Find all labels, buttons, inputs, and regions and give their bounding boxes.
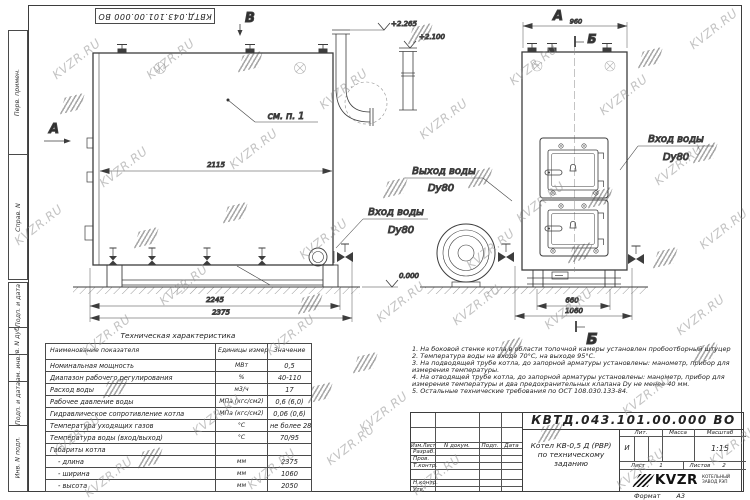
- rear-duct-pipe: [399, 48, 417, 110]
- spec-cell: Гидравлическое сопротивление котла: [46, 408, 216, 420]
- callout-water-inlet-left: [336, 219, 428, 248]
- spec-row: Температура воды (вход/выход)°С70/95: [46, 432, 312, 444]
- spec-cell: 0,06 (0,6): [268, 408, 312, 420]
- dim-1060: 1060: [565, 307, 583, 315]
- top-valves-side-view: [117, 45, 328, 54]
- tb-col-data: Дата: [501, 443, 522, 449]
- kvzr-logo-icon: [632, 474, 654, 487]
- spec-cell: м3/ч: [216, 384, 268, 396]
- spec-cell: Расход воды: [46, 384, 216, 396]
- view-label-a-right: А: [552, 9, 563, 24]
- tb-sheets-label: Листов: [686, 463, 714, 469]
- notes-list: 1. На боковой стенке котла в области топ…: [412, 346, 743, 395]
- spec-cell: 2050: [268, 480, 312, 492]
- kvzr-logo-subtitle: КОТЕЛЬНЫЙ ЗАВОД РЭП: [702, 475, 730, 486]
- spec-row: Диапазон рабочего регулирования%40-110: [46, 372, 312, 384]
- tb-col-izm: Изм.Лист: [411, 443, 435, 449]
- tb-row-razrab: Разраб.: [413, 449, 435, 455]
- water-inlet-right-label: Вход воды: [648, 134, 704, 145]
- spec-row: - длинамм2375: [46, 456, 312, 468]
- spec-header-row: Наименование показателя Единицы измерени…: [46, 344, 312, 360]
- title-block-right: Лит. Масса Масштаб И 1:15 Лист 1 Листов …: [619, 429, 746, 491]
- spec-header-name: Наименование показателя: [46, 344, 216, 360]
- spec-cell: 17: [268, 384, 312, 396]
- format-value: А3: [676, 492, 685, 500]
- spec-cell: - высота: [46, 480, 216, 492]
- kvzr-logo-text: KVZR: [655, 472, 698, 488]
- tb-name-line2: по техническому заданию: [523, 450, 619, 468]
- tb-lit-label: Лит.: [620, 430, 662, 436]
- elevation-marks: [350, 23, 416, 287]
- kvzr-logo: KVZR КОТЕЛЬНЫЙ ЗАВОД РЭП: [620, 469, 746, 491]
- tb-lit-value: И: [620, 436, 634, 461]
- note-item: 5. Остальные технические требования по О…: [412, 388, 743, 395]
- dim-2245: 2245: [206, 296, 224, 304]
- spec-row: Номинальная мощностьМВт0,5: [46, 360, 312, 372]
- blower-fan: [437, 224, 495, 287]
- front-view-base: [527, 270, 621, 287]
- water-inlet-left-dn: Dy80: [388, 225, 414, 236]
- spec-cell: МПа (кгс/см2): [216, 408, 268, 420]
- spec-cell: Номинальная мощность: [46, 360, 216, 372]
- water-outlet-dn: Dy80: [428, 183, 454, 194]
- spec-cell: 2375: [268, 456, 312, 468]
- tb-sheet-label: Лист: [626, 463, 650, 469]
- note-item: 3. На подводящей трубе котла, до запорно…: [412, 360, 743, 374]
- ground-hatch: [73, 287, 648, 294]
- spec-cell: 1060: [268, 468, 312, 480]
- spec-cell: МПа (кгс/см2): [216, 396, 268, 408]
- drawing-sheet: Перв. примен. Справ. N Подп. и дата Инв.…: [0, 0, 750, 500]
- spec-row: Расход водым3/ч17: [46, 384, 312, 396]
- view-label-a-left: А: [48, 122, 59, 137]
- spec-header-value: Значение: [268, 344, 312, 360]
- spec-row: - ширинамм1060: [46, 468, 312, 480]
- spec-header-unit: Единицы измерения: [216, 344, 268, 360]
- tb-sheet-value: 1: [656, 463, 666, 469]
- spec-cell: Температура воды (вход/выход): [46, 432, 216, 444]
- format-note: ФорматА3: [634, 492, 685, 500]
- spec-table-title: Техническая характеристика: [45, 331, 311, 340]
- kvzr-logo-sub2: ЗАВОД РЭП: [702, 480, 730, 485]
- spec-row: - высотамм2050: [46, 480, 312, 492]
- spec-row: Габариты котла: [46, 444, 312, 456]
- tb-name-line1: Котел КВ-0,5 Д (РВР): [523, 441, 619, 450]
- spec-cell: [216, 444, 268, 456]
- tb-mass-label: Масса: [662, 430, 694, 436]
- tb-row-utv: Утв.: [413, 487, 425, 493]
- format-label: Формат: [634, 492, 660, 500]
- spec-row: Температура уходящих газов°Сне более 280: [46, 420, 312, 432]
- callout-water-outlet: [405, 178, 512, 201]
- boiler-front-view: [522, 47, 627, 272]
- tb-col-ndoc: N докум.: [435, 443, 479, 449]
- spec-cell: Габариты котла: [46, 444, 216, 456]
- tb-sheets-value: 2: [718, 463, 730, 469]
- spec-cell: [268, 444, 312, 456]
- tb-row-nkontr: Н.контр.: [413, 480, 438, 486]
- spec-cell: - длина: [46, 456, 216, 468]
- tb-row-prov: Пров.: [413, 456, 429, 462]
- spec-cell: МВт: [216, 360, 268, 372]
- drain-valves: [109, 248, 266, 265]
- spec-cell: Диапазон рабочего регулирования: [46, 372, 216, 384]
- tb-row-tkontr: Т.контр.: [413, 463, 437, 469]
- spec-cell: не более 280: [268, 420, 312, 432]
- outlet-pipe-elbow: [332, 30, 387, 126]
- spec-cell: %: [216, 372, 268, 384]
- tb-col-podp: Подп.: [479, 443, 501, 449]
- spec-table-section: Техническая характеристика Наименование …: [45, 331, 311, 492]
- water-outlet-label: Выход воды: [412, 166, 476, 177]
- spec-row: Рабочее давление водыМПа (кгс/см2)0,6 (6…: [46, 396, 312, 408]
- spec-cell: 0,6 (6,0): [268, 396, 312, 408]
- spec-cell: мм: [216, 468, 268, 480]
- section-mark-top: Б: [587, 32, 596, 46]
- dim-960: 960: [570, 18, 582, 26]
- spec-cell: °С: [216, 432, 268, 444]
- spec-cell: 0,5: [268, 360, 312, 372]
- boiler-side-view: [85, 53, 338, 287]
- tb-scale-label: Масштаб: [694, 430, 746, 436]
- view-label-v: В: [245, 11, 255, 26]
- title-block-name: Котел КВ-0,5 Д (РВР) по техническому зад…: [522, 429, 619, 491]
- tb-scale-value: 1:15: [694, 436, 746, 461]
- note-item: 4. На отводящей трубе котла, до запорной…: [412, 374, 743, 388]
- title-block-doc-number: КВТД.043.101.00.000 ВО: [522, 413, 744, 430]
- water-inlet-right-dn: Dy80: [663, 152, 689, 163]
- spec-cell: Температура уходящих газов: [46, 420, 216, 432]
- dim-2115: 2115: [207, 161, 225, 169]
- spec-cell: Рабочее давление воды: [46, 396, 216, 408]
- elevation-ground-value: 0.000: [399, 272, 420, 280]
- dim-2375: 2375: [212, 309, 230, 317]
- water-inlet-left-label: Вход воды: [368, 207, 424, 218]
- front-view-side-valves: [498, 244, 644, 264]
- lifting-lug-marks: [155, 61, 616, 74]
- spec-table: Наименование показателя Единицы измерени…: [45, 343, 312, 492]
- spec-table-body: Номинальная мощностьМВт0,5Диапазон рабоч…: [46, 360, 312, 492]
- spec-row: Гидравлическое сопротивление котлаМПа (к…: [46, 408, 312, 420]
- spec-cell: мм: [216, 480, 268, 492]
- elevation-duct-value: +2.100: [419, 33, 445, 41]
- title-block: КВТД.043.101.00.000 ВО Изм.Лист N докум.…: [410, 412, 744, 492]
- spec-cell: 70/95: [268, 432, 312, 444]
- spec-cell: 40-110: [268, 372, 312, 384]
- spec-cell: °С: [216, 420, 268, 432]
- top-valves-front-view: [527, 44, 612, 53]
- elevation-pipe-value: +2.265: [391, 20, 417, 28]
- furnace-door-lower: [540, 200, 608, 256]
- dim-660: 660: [565, 297, 579, 305]
- spec-cell: мм: [216, 456, 268, 468]
- see-note-label: см. п. 1: [268, 111, 305, 122]
- spec-cell: - ширина: [46, 468, 216, 480]
- furnace-door-upper: [540, 138, 608, 198]
